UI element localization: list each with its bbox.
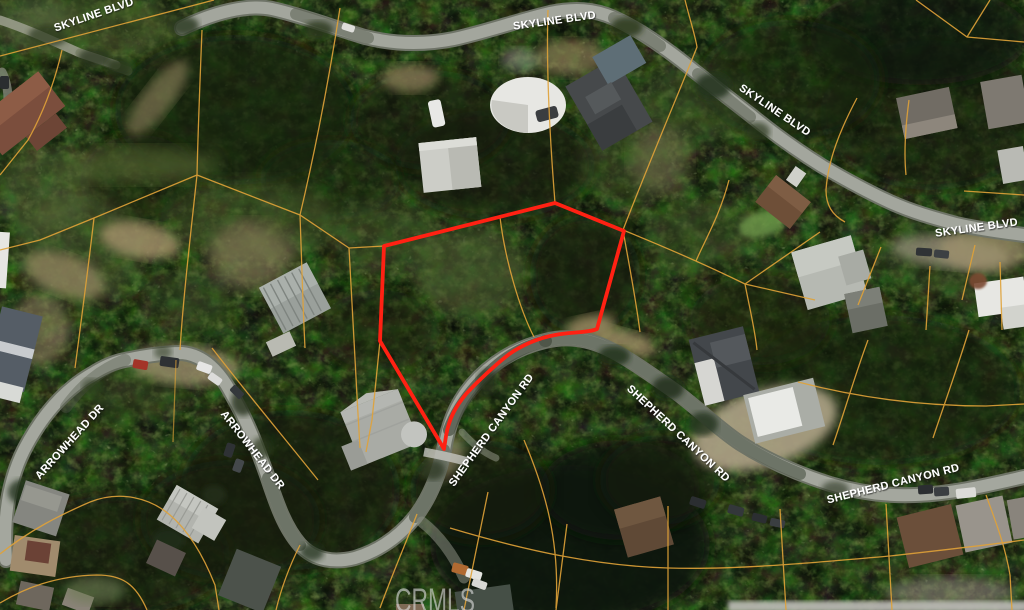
svg-text:CRMLS: CRMLS xyxy=(395,582,475,610)
